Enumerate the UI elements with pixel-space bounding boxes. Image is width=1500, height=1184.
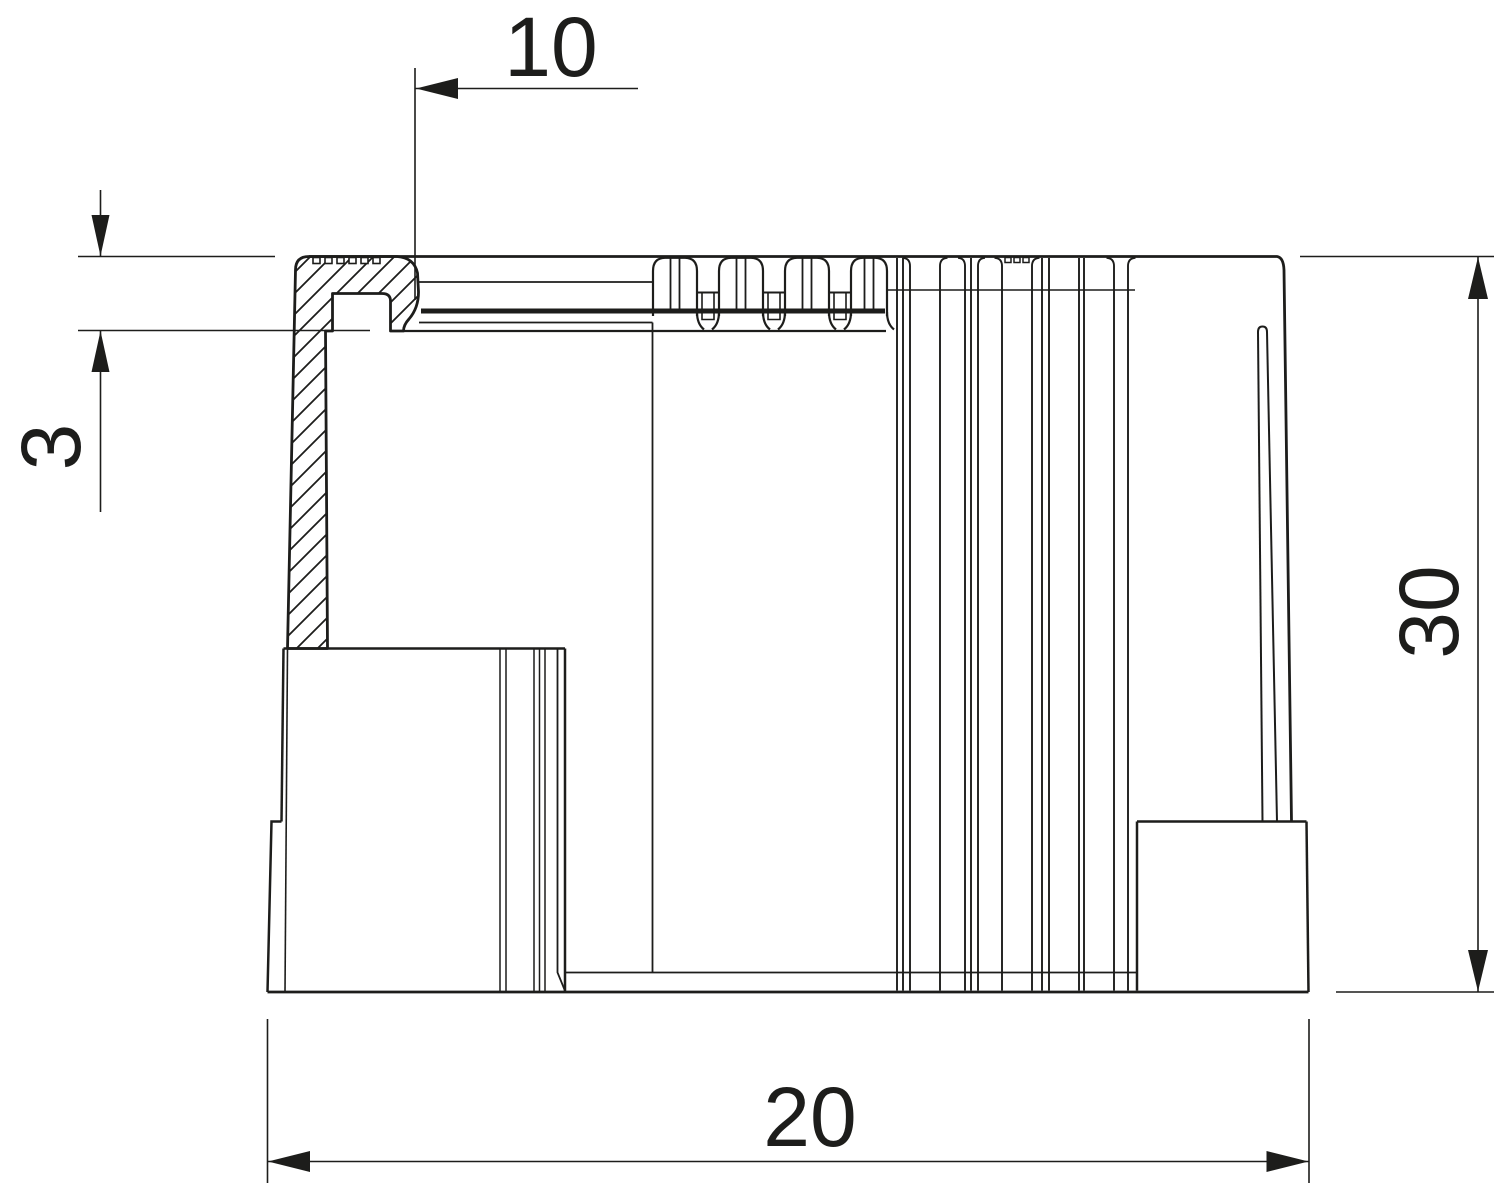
dim-10-label: 10	[504, 0, 597, 94]
dimension-20: 20	[268, 1019, 1310, 1183]
part-view	[268, 257, 1309, 993]
flange-lines	[404, 282, 887, 331]
dim-3-arrow-down	[92, 215, 110, 256]
technical-drawing: 10 3 30 20	[0, 0, 1500, 1184]
right-slot	[1258, 327, 1277, 822]
dim-30-arrow-down	[1468, 950, 1488, 992]
left-foot	[268, 649, 566, 993]
dim-20-arrow-right	[1267, 1151, 1309, 1172]
right-foot	[1137, 822, 1309, 993]
top-edge	[309, 257, 1292, 822]
left-foot-rib-lines	[500, 649, 545, 993]
dimension-30: 30	[1300, 257, 1494, 993]
dim-3-label: 3	[4, 424, 98, 471]
dim-10-arrow	[416, 78, 458, 99]
dim-30-arrow-up	[1468, 257, 1488, 299]
dim-3-arrow-up	[92, 331, 110, 372]
dimension-10: 10	[415, 0, 638, 300]
hatched-cross-section	[288, 257, 419, 649]
dim-20-label: 20	[763, 1070, 856, 1164]
castellation-teeth	[653, 258, 894, 330]
dim-30-label: 30	[1382, 565, 1476, 658]
dim-20-arrow-left	[268, 1151, 310, 1172]
knurling-ticks-right	[1005, 258, 1029, 263]
surface-rib-lines	[886, 258, 1136, 991]
technical-drawing-canvas: 10 3 30 20	[0, 0, 1500, 1184]
